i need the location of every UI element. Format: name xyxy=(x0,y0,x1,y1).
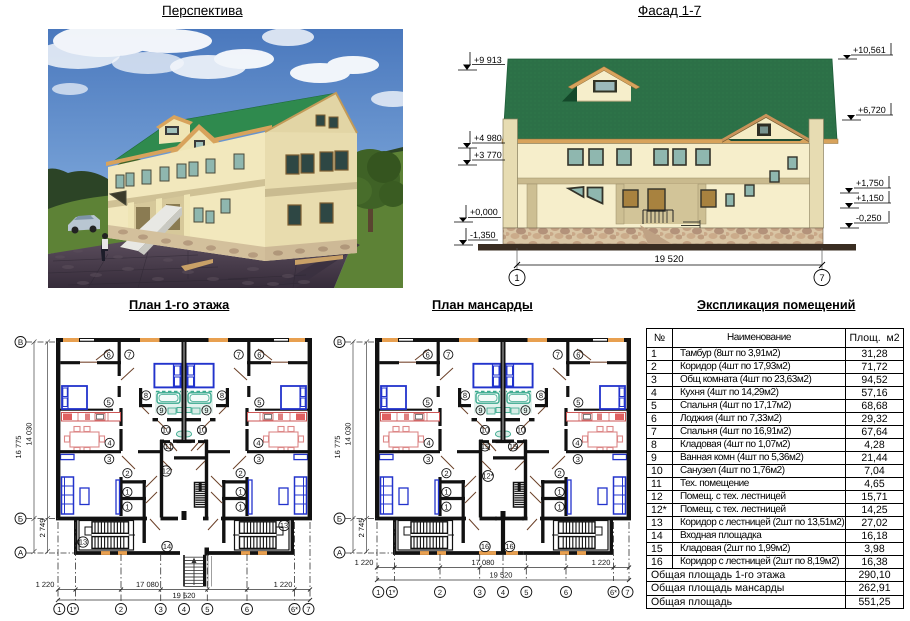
svg-text:6*: 6* xyxy=(291,605,298,614)
svg-text:16: 16 xyxy=(481,542,489,551)
svg-text:1: 1 xyxy=(57,605,61,614)
svg-text:1 220: 1 220 xyxy=(274,580,293,589)
svg-text:+1,750: +1,750 xyxy=(856,178,884,188)
svg-text:17 080: 17 080 xyxy=(472,558,495,567)
svg-text:+10,561: +10,561 xyxy=(853,45,886,55)
svg-text:2 745: 2 745 xyxy=(357,519,366,538)
svg-text:+0,000: +0,000 xyxy=(470,207,498,217)
svg-text:15: 15 xyxy=(509,442,517,451)
svg-text:19 520: 19 520 xyxy=(490,571,513,580)
svg-text:5: 5 xyxy=(524,588,528,597)
svg-text:3: 3 xyxy=(478,588,482,597)
svg-text:19 520: 19 520 xyxy=(654,254,683,265)
svg-text:-1,350: -1,350 xyxy=(470,230,496,240)
svg-text:1: 1 xyxy=(376,588,380,597)
svg-text:7: 7 xyxy=(625,588,629,597)
svg-text:5: 5 xyxy=(205,605,209,614)
svg-text:+4 980: +4 980 xyxy=(474,133,502,143)
svg-text:19 520: 19 520 xyxy=(173,591,196,600)
svg-text:4: 4 xyxy=(182,605,186,614)
svg-text:+1,150: +1,150 xyxy=(856,193,884,203)
svg-text:3: 3 xyxy=(159,605,163,614)
svg-text:12*: 12* xyxy=(482,472,493,481)
svg-text:7: 7 xyxy=(819,273,824,284)
svg-text:6*: 6* xyxy=(610,588,617,597)
svg-text:2: 2 xyxy=(438,588,442,597)
svg-text:15: 15 xyxy=(481,442,489,451)
svg-text:+6,720: +6,720 xyxy=(858,105,886,115)
svg-text:1 220: 1 220 xyxy=(36,580,55,589)
svg-text:13: 13 xyxy=(280,521,288,530)
svg-text:14: 14 xyxy=(163,542,171,551)
svg-text:2: 2 xyxy=(119,605,123,614)
svg-text:6: 6 xyxy=(245,605,249,614)
svg-text:16: 16 xyxy=(505,542,513,551)
svg-text:13: 13 xyxy=(79,538,87,547)
svg-text:1 220: 1 220 xyxy=(355,558,374,567)
svg-text:1*: 1* xyxy=(388,588,395,597)
svg-text:11: 11 xyxy=(165,442,173,451)
svg-text:4: 4 xyxy=(501,588,505,597)
svg-text:17 080: 17 080 xyxy=(136,580,159,589)
svg-text:7: 7 xyxy=(306,605,310,614)
svg-text:1*: 1* xyxy=(69,605,76,614)
svg-text:+3 770: +3 770 xyxy=(474,150,502,160)
svg-text:1 220: 1 220 xyxy=(592,558,611,567)
svg-text:6: 6 xyxy=(564,588,568,597)
svg-text:1: 1 xyxy=(514,273,519,284)
svg-text:12: 12 xyxy=(162,467,170,476)
svg-text:-0,250: -0,250 xyxy=(856,213,882,223)
svg-text:2 749: 2 749 xyxy=(38,519,47,538)
svg-text:+9 913: +9 913 xyxy=(474,55,502,65)
